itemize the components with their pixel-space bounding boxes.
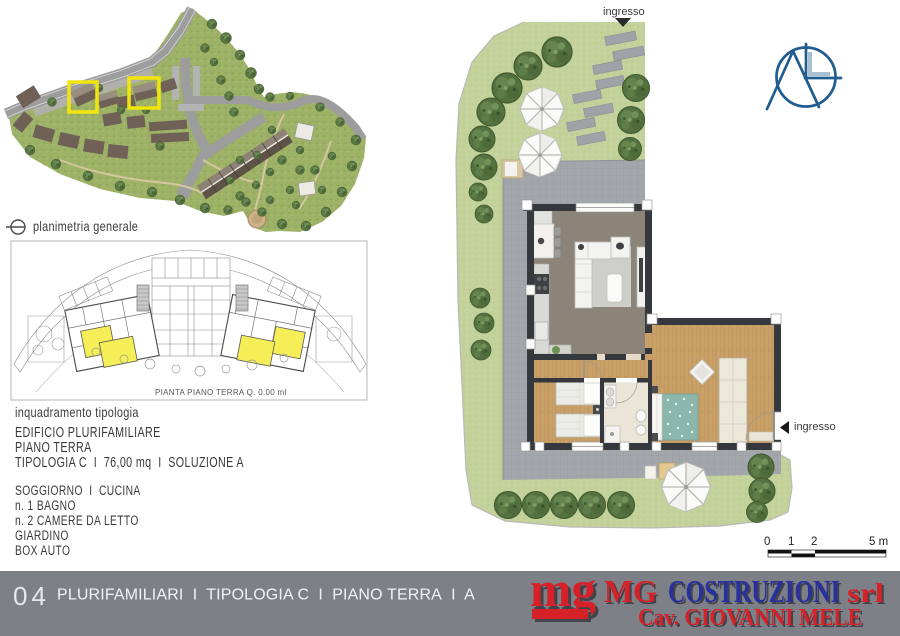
svg-text:srl: srl xyxy=(847,578,885,608)
svg-text:COSTRUZIONI: COSTRUZIONI xyxy=(668,573,840,609)
svg-text:MG: MG xyxy=(604,573,657,609)
svg-text:Cav. GIOVANNI MELE: Cav. GIOVANNI MELE xyxy=(638,605,862,631)
